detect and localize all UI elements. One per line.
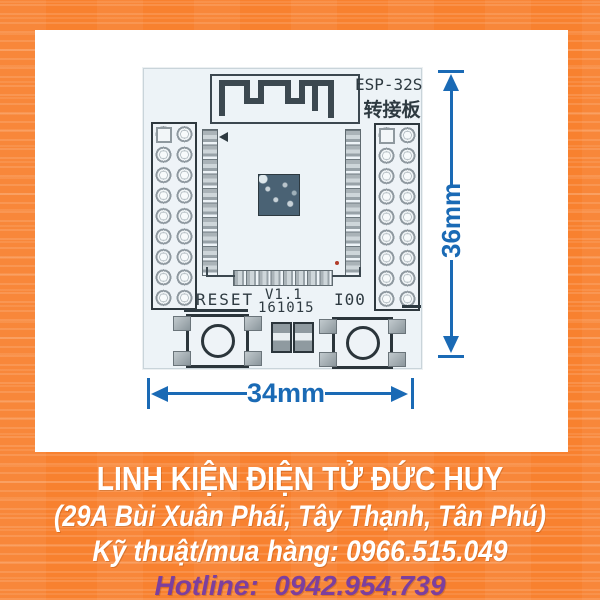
seller-banner: LINH KIỆN ĐIỆN TỬ ĐỨC HUY (29A Bùi Xuân … <box>0 452 600 600</box>
store-name: LINH KIỆN ĐIỆN TỬ ĐỨC HUY <box>42 460 558 498</box>
pin1-square-marker <box>379 128 395 144</box>
model-chinese-label: 转接板 <box>363 95 421 122</box>
dimension-tick <box>438 355 464 358</box>
smd-resistor <box>271 322 292 353</box>
silkscreen-corner <box>332 267 361 277</box>
silkscreen-line <box>402 305 421 308</box>
pcb-board: ESP-32S 转接板 RESET V1.1 161015 I00 <box>143 68 422 369</box>
io0-button <box>332 317 393 369</box>
silkscreen-line <box>184 309 248 312</box>
solder-pad <box>319 319 337 334</box>
pin1-square-marker <box>156 127 172 143</box>
store-address: (29A Bùi Xuân Phái, Tây Thạnh, Tân Phú) <box>48 500 552 534</box>
silkscreen-corner <box>206 267 235 277</box>
dimension-tick <box>147 378 150 409</box>
right-pin-header <box>374 123 420 311</box>
antenna-trace-icon <box>212 76 354 118</box>
hotline-phone: Hotline: 0942.954.739 <box>0 570 600 600</box>
module-right-pads <box>345 129 361 276</box>
width-dimension-label: 34mm <box>247 378 319 409</box>
arrow-right-icon <box>391 386 408 402</box>
solder-pad <box>388 352 406 367</box>
dimension-tick <box>438 70 464 73</box>
solder-pad <box>388 319 406 334</box>
datecode-label: 161015 <box>258 300 315 316</box>
model-label: ESP-32S <box>355 75 421 94</box>
module-left-pads <box>202 129 218 276</box>
dimension-line <box>325 392 391 395</box>
dimension-tick <box>411 378 414 409</box>
dimension-line <box>167 392 247 395</box>
smd-resistor <box>293 322 314 353</box>
reset-label: RESET <box>196 290 254 309</box>
thermal-pad <box>258 174 300 216</box>
io0-label: I00 <box>334 290 366 309</box>
reset-button <box>186 314 249 368</box>
dimension-line <box>450 260 453 338</box>
module-bottom-pads <box>233 270 333 286</box>
solder-pad <box>319 352 337 367</box>
solder-pad <box>244 316 262 331</box>
height-dimension-label: 36mm <box>436 188 466 258</box>
tech-sales-phone: Kỹ thuật/mua hàng: 0966.515.049 <box>36 535 564 569</box>
solder-pad <box>173 351 191 366</box>
arrow-down-icon <box>443 336 459 353</box>
dimension-line <box>450 89 453 188</box>
height-dimension: 36mm <box>436 70 466 360</box>
solder-pad <box>244 351 262 366</box>
red-dot <box>335 261 339 265</box>
product-image: ESP-32S 转接板 RESET V1.1 161015 I00 <box>0 0 600 600</box>
io0-button-cap <box>346 326 380 360</box>
width-dimension: 34mm <box>145 376 417 412</box>
photo-area: ESP-32S 转接板 RESET V1.1 161015 I00 <box>35 30 568 452</box>
pin1-triangle-icon <box>219 132 228 142</box>
reset-button-cap <box>201 324 235 358</box>
left-pin-header <box>151 122 197 310</box>
solder-pad <box>173 316 191 331</box>
arrow-left-icon <box>151 386 168 402</box>
antenna-zone <box>210 74 360 124</box>
